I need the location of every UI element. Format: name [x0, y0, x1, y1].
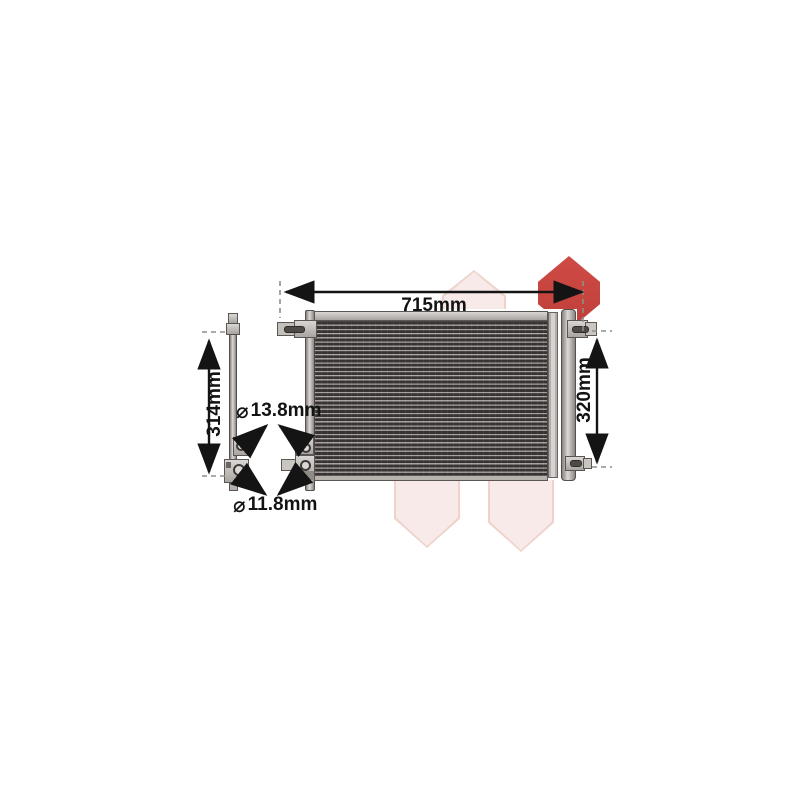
- height-dimension-label: 320mm: [574, 320, 596, 460]
- mounting-bracket-top-left-slot: [284, 326, 305, 333]
- width-dimension-label: 715mm: [354, 295, 514, 317]
- outlet-fitting-port: [300, 460, 311, 471]
- top-fitting-diameter-value: 13.8mm: [251, 400, 322, 422]
- top-fitting-diameter-label: ⌀ 13.8mm: [236, 400, 321, 422]
- diameter-icon: ⌀: [233, 495, 246, 516]
- condenser-product-drawing: 715mm 320mm 314mm ⌀ 13.8mm ⌀ 11.8mm: [0, 0, 800, 800]
- condenser-bottom-edge: [314, 475, 548, 481]
- side-view-bottom-fitting-port: [233, 464, 245, 476]
- diameter-icon: ⌀: [236, 401, 249, 422]
- condenser-fin-core: [314, 321, 548, 477]
- mounting-bracket-bottom-right-slot: [570, 460, 582, 467]
- side-view-bottom-tip: [229, 483, 238, 491]
- bottom-fitting-diameter-value: 11.8mm: [248, 494, 318, 516]
- side-height-dimension-label: 314mm: [204, 334, 226, 474]
- bottom-fitting-diameter-label: ⌀ 11.8mm: [233, 494, 317, 516]
- side-view-mid-fitting-port: [236, 441, 246, 451]
- condenser-right-side-plate: [548, 312, 558, 478]
- inlet-fitting-port: [301, 443, 311, 453]
- outlet-fitting-base: [296, 471, 314, 480]
- side-view-bottom-fitting-tab: [226, 462, 231, 468]
